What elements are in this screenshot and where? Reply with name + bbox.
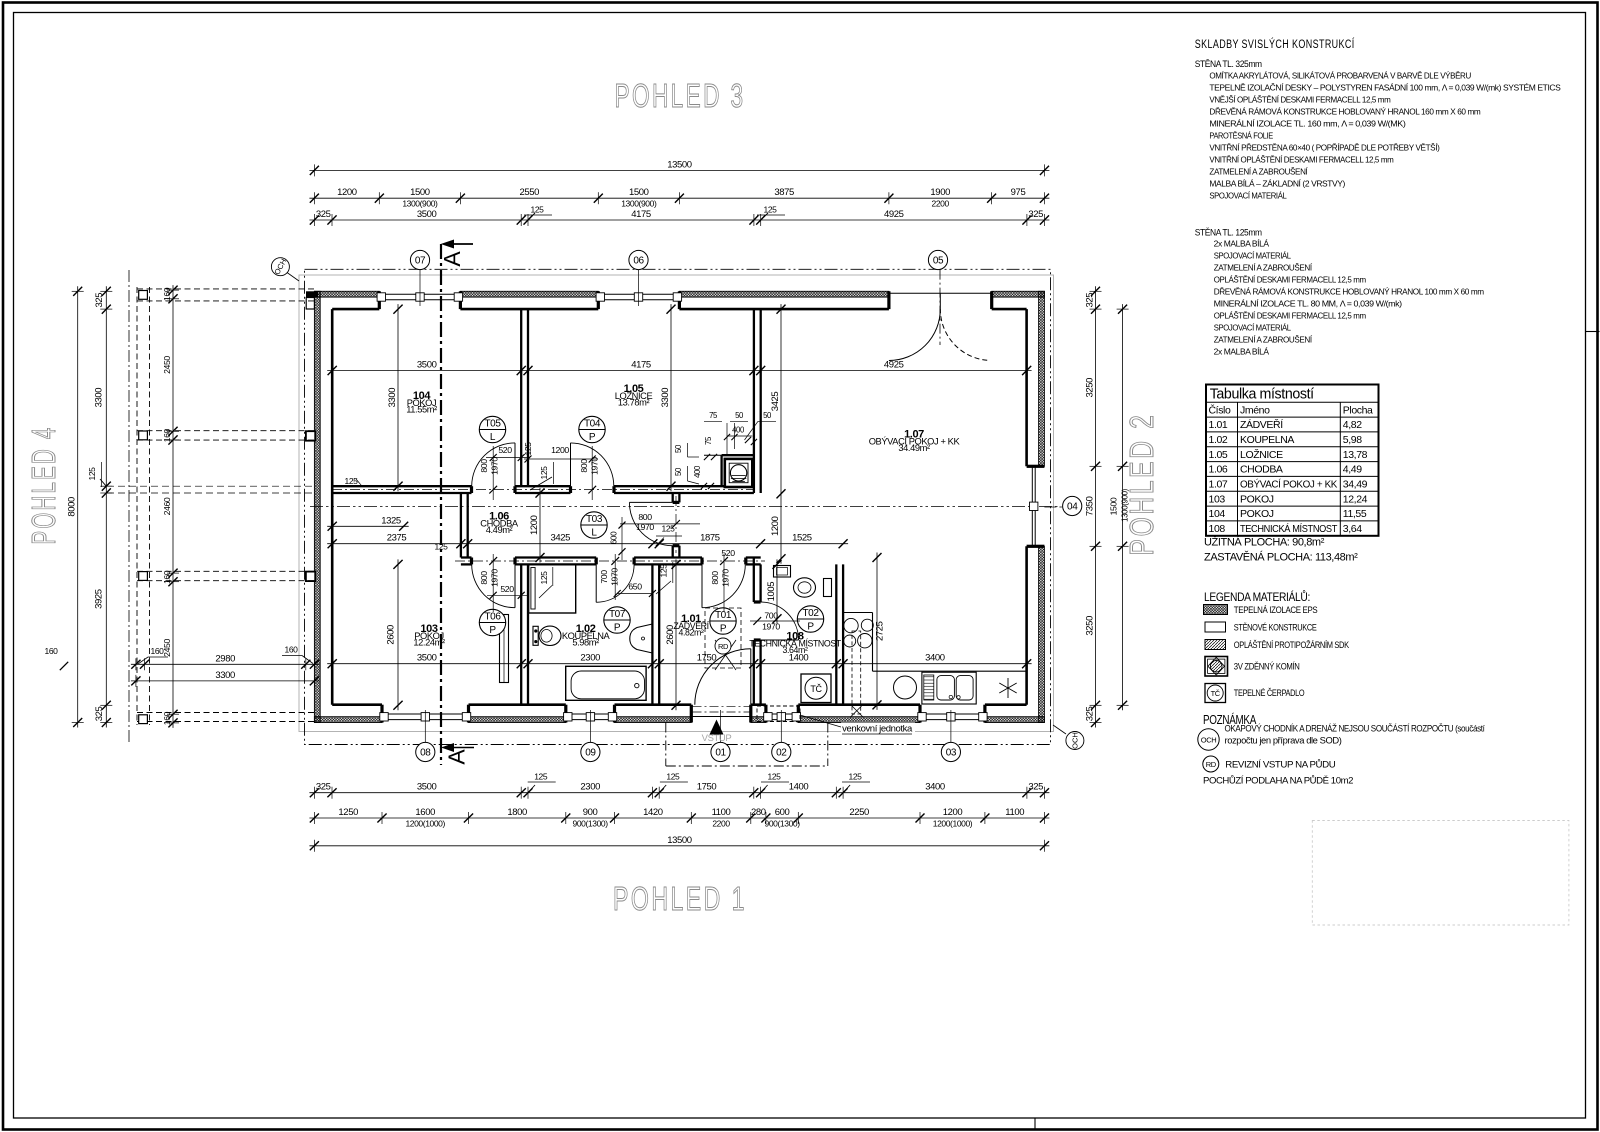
svg-text:3300: 3300 [94, 388, 105, 408]
svg-text:800: 800 [638, 512, 652, 522]
svg-text:50: 50 [735, 411, 744, 420]
svg-text:POHLED 3: POHLED 3 [615, 77, 746, 114]
svg-text:VNITŘNÍ PŘEDSTĚNA 60×40 ( POPŘ: VNITŘNÍ PŘEDSTĚNA 60×40 ( POPŘÍPADĚ DLE … [1209, 143, 1440, 153]
svg-text:1.02: 1.02 [1209, 434, 1228, 446]
svg-text:2x MALBA BÍLÁ: 2x MALBA BÍLÁ [1214, 347, 1270, 357]
svg-text:125: 125 [662, 524, 676, 534]
svg-text:02: 02 [776, 747, 787, 758]
svg-text:T06: T06 [484, 612, 501, 623]
svg-text:325: 325 [316, 782, 331, 793]
svg-text:2460: 2460 [162, 497, 172, 515]
svg-text:160: 160 [162, 428, 172, 442]
svg-text:160: 160 [162, 287, 172, 301]
svg-text:STĚNA TL. 125mm: STĚNA TL. 125mm [1195, 228, 1262, 238]
svg-text:3250: 3250 [1085, 616, 1096, 636]
svg-text:108: 108 [1209, 523, 1226, 535]
svg-text:ZATMELENÍ A ZABROUŠENÍ: ZATMELENÍ A ZABROUŠENÍ [1214, 335, 1313, 345]
svg-text:280: 280 [751, 807, 766, 818]
svg-text:OMÍTKA AKRYLÁTOVÁ, SILIKÁTOVÁ: OMÍTKA AKRYLÁTOVÁ, SILIKÁTOVÁ PROBARVENÁ… [1209, 71, 1471, 81]
svg-text:103: 103 [1209, 493, 1226, 505]
svg-text:125: 125 [849, 772, 863, 782]
svg-text:Plocha: Plocha [1343, 405, 1373, 417]
svg-text:1900: 1900 [930, 187, 950, 198]
svg-text:1250: 1250 [338, 807, 358, 818]
svg-text:LOŽNICE: LOŽNICE [1240, 448, 1283, 461]
svg-text:REVIZNÍ VSTUP NA PŮDU: REVIZNÍ VSTUP NA PŮDU [1225, 759, 1335, 770]
svg-text:13,78: 13,78 [1343, 449, 1368, 461]
svg-text:A: A [439, 251, 465, 267]
svg-text:2375: 2375 [387, 533, 407, 544]
svg-text:900(1300): 900(1300) [765, 819, 801, 829]
svg-text:04: 04 [1067, 501, 1078, 512]
svg-text:3.64m²: 3.64m² [783, 645, 808, 655]
svg-text:1200(1000): 1200(1000) [933, 819, 973, 829]
svg-text:PAROTĚSNÁ FOLIE: PAROTĚSNÁ FOLIE [1209, 131, 1273, 141]
svg-text:RD: RD [1206, 760, 1217, 769]
svg-text:2300: 2300 [580, 653, 600, 664]
svg-text:08: 08 [420, 747, 431, 758]
svg-text:OPLÁŠTĚNÍ DESKAMI FERMACELL 12: OPLÁŠTĚNÍ DESKAMI FERMACELL 12,5 mm [1214, 275, 1366, 285]
svg-text:1970: 1970 [490, 457, 500, 475]
svg-text:125: 125 [539, 571, 549, 585]
svg-text:5,98: 5,98 [1343, 434, 1362, 446]
svg-text:900(1300): 900(1300) [573, 819, 609, 829]
svg-text:7350: 7350 [1085, 496, 1096, 516]
svg-text:1005: 1005 [766, 582, 777, 602]
svg-text:T05: T05 [484, 419, 501, 430]
svg-text:OCH: OCH [1201, 736, 1216, 745]
svg-text:05: 05 [933, 255, 944, 266]
svg-text:P: P [589, 432, 596, 443]
svg-text:1970: 1970 [636, 522, 654, 532]
svg-text:2725: 2725 [875, 621, 886, 641]
svg-text:1500: 1500 [410, 187, 430, 198]
svg-text:09: 09 [585, 747, 596, 758]
svg-text:160: 160 [45, 646, 59, 656]
svg-text:125: 125 [523, 442, 533, 456]
svg-text:3500: 3500 [417, 209, 437, 220]
svg-text:POHLED 2: POHLED 2 [1123, 413, 1160, 556]
svg-text:POCHŮZÍ PODLAHA NA PŮDĚ 10m2: POCHŮZÍ PODLAHA NA PŮDĚ 10m2 [1203, 775, 1353, 786]
svg-text:2200: 2200 [932, 199, 950, 209]
svg-text:RD: RD [718, 642, 729, 651]
svg-text:125: 125 [435, 542, 449, 552]
svg-text:1100: 1100 [712, 807, 731, 818]
svg-text:160: 160 [162, 711, 172, 725]
svg-text:1970: 1970 [490, 569, 500, 587]
svg-text:104: 104 [1209, 508, 1226, 520]
svg-text:SPOJOVACÍ MATERIÁL: SPOJOVACÍ MATERIÁL [1214, 251, 1292, 261]
svg-text:1750: 1750 [697, 653, 717, 664]
svg-text:1.06: 1.06 [1209, 464, 1228, 476]
svg-text:1600: 1600 [415, 807, 435, 818]
svg-text:2300: 2300 [580, 782, 600, 793]
svg-text:UŽITNÁ PLOCHA: 90,8m²: UŽITNÁ PLOCHA: 90,8m² [1204, 536, 1325, 549]
svg-text:KOUPELNA: KOUPELNA [1240, 434, 1294, 446]
svg-text:1.07: 1.07 [1209, 479, 1228, 491]
svg-text:ZASTAVĚNÁ PLOCHA: 113,48m²: ZASTAVĚNÁ PLOCHA: 113,48m² [1204, 551, 1358, 564]
svg-text:1970: 1970 [590, 457, 600, 475]
svg-text:325: 325 [1085, 706, 1096, 721]
svg-text:T03: T03 [586, 514, 603, 525]
svg-text:13500: 13500 [667, 159, 692, 170]
svg-text:STĚNA TL. 325mm: STĚNA TL. 325mm [1195, 59, 1262, 69]
svg-text:325: 325 [94, 293, 105, 308]
svg-text:3V ZDĚNNÝ KOMÍN: 3V ZDĚNNÝ KOMÍN [1234, 662, 1300, 672]
svg-text:06: 06 [633, 255, 644, 266]
svg-text:MINERÁLNÍ IZOLACE TL. 80 MM, Λ: MINERÁLNÍ IZOLACE TL. 80 MM, Λ = 0,039 W… [1214, 299, 1403, 309]
svg-text:POHLED 1: POHLED 1 [613, 880, 747, 917]
svg-text:125: 125 [345, 476, 359, 486]
svg-text:POHLED 4: POHLED 4 [25, 426, 62, 545]
svg-text:50: 50 [763, 411, 772, 420]
svg-text:DŘEVĚNÁ RÁMOVÁ KONSTRUKCE HOBL: DŘEVĚNÁ RÁMOVÁ KONSTRUKCE HOBLOVANÝ HRAN… [1209, 107, 1480, 117]
svg-text:125: 125 [87, 467, 97, 481]
svg-text:160: 160 [151, 646, 165, 656]
svg-text:OPLÁŠTĚNÍ DESKAMI FERMACELL 12: OPLÁŠTĚNÍ DESKAMI FERMACELL 12,5 mm [1214, 311, 1366, 321]
svg-text:650: 650 [628, 582, 642, 592]
svg-text:4175: 4175 [631, 360, 651, 371]
svg-text:800: 800 [579, 459, 589, 473]
svg-text:400: 400 [693, 465, 702, 478]
svg-text:75: 75 [709, 411, 718, 420]
svg-text:1400: 1400 [789, 782, 809, 793]
svg-text:900: 900 [583, 807, 598, 818]
svg-text:3500: 3500 [417, 782, 437, 793]
svg-text:520: 520 [721, 548, 735, 558]
svg-text:P: P [489, 625, 496, 636]
svg-text:125: 125 [764, 205, 778, 215]
svg-text:13.78m²: 13.78m² [618, 398, 650, 408]
svg-text:11.55m²: 11.55m² [406, 405, 437, 415]
svg-text:OBÝVACÍ POKOJ + KK: OBÝVACÍ POKOJ + KK [1240, 478, 1337, 491]
svg-text:1500: 1500 [629, 187, 649, 198]
svg-text:125: 125 [534, 772, 548, 782]
svg-text:3300: 3300 [387, 388, 398, 408]
svg-text:LEGENDA MATERIÁLŮ:: LEGENDA MATERIÁLŮ: [1204, 589, 1310, 604]
svg-text:2550: 2550 [520, 187, 540, 198]
svg-text:700: 700 [764, 611, 778, 621]
svg-text:1525: 1525 [792, 533, 812, 544]
svg-text:1300(900): 1300(900) [1121, 488, 1130, 522]
svg-text:TČ: TČ [810, 684, 822, 694]
svg-text:CHODBA: CHODBA [1240, 464, 1283, 476]
svg-text:L: L [591, 528, 597, 539]
svg-text:4.49m²: 4.49m² [486, 525, 513, 535]
svg-text:MINERÁLNÍ IZOLACE TL. 160 mm,: MINERÁLNÍ IZOLACE TL. 160 mm, Λ = 0,039 … [1209, 119, 1406, 129]
svg-text:520: 520 [498, 445, 512, 455]
svg-text:T04: T04 [584, 419, 601, 430]
svg-text:325: 325 [1028, 209, 1043, 220]
svg-text:2200: 2200 [712, 819, 730, 829]
svg-text:2450: 2450 [162, 639, 172, 657]
svg-text:3925: 3925 [94, 589, 105, 609]
svg-text:OKAPOVÝ CHODNÍK A DRENÁŽ NEJSO: OKAPOVÝ CHODNÍK A DRENÁŽ NEJSOU SOUČÁSTÍ… [1225, 724, 1486, 734]
svg-text:1500: 1500 [1109, 497, 1119, 515]
svg-text:5.98m²: 5.98m² [572, 638, 599, 648]
svg-text:rozpočtu jen příprava dle SOD): rozpočtu jen příprava dle SOD) [1225, 736, 1342, 746]
svg-text:2x MALBA BÍLÁ: 2x MALBA BÍLÁ [1214, 239, 1270, 249]
svg-text:TECHNICKÁ MÍSTNOST: TECHNICKÁ MÍSTNOST [1240, 522, 1338, 535]
svg-text:1200: 1200 [943, 807, 963, 818]
svg-text:4,82: 4,82 [1343, 419, 1362, 431]
svg-text:2980: 2980 [215, 653, 235, 664]
svg-text:1200: 1200 [551, 445, 569, 455]
svg-text:T07: T07 [609, 609, 626, 620]
svg-text:TEPELNÁ IZOLACE EPS: TEPELNÁ IZOLACE EPS [1234, 605, 1318, 615]
svg-text:600: 600 [775, 807, 790, 818]
svg-text:1.05: 1.05 [1209, 449, 1228, 461]
svg-text:1420: 1420 [643, 807, 663, 818]
svg-text:OCH: OCH [1070, 732, 1079, 749]
svg-text:325: 325 [94, 706, 105, 721]
svg-text:34.49m²: 34.49m² [898, 443, 930, 453]
svg-text:03: 03 [946, 747, 957, 758]
svg-text:1750: 1750 [697, 782, 717, 793]
svg-text:700: 700 [599, 570, 609, 584]
svg-text:3,64: 3,64 [1343, 523, 1362, 535]
svg-text:1800: 1800 [507, 807, 527, 818]
svg-text:125: 125 [768, 772, 782, 782]
svg-text:3500: 3500 [417, 653, 437, 664]
svg-text:1300(900): 1300(900) [621, 199, 657, 209]
svg-text:MALBA BÍLÁ – ZÁKLADNÍ (2 VRSTV: MALBA BÍLÁ – ZÁKLADNÍ (2 VRSTVY) [1209, 179, 1345, 189]
svg-text:12.24m²: 12.24m² [413, 638, 445, 648]
svg-text:L: L [490, 432, 496, 443]
svg-text:8000: 8000 [67, 497, 78, 517]
svg-text:400: 400 [732, 426, 745, 435]
svg-text:1325: 1325 [381, 515, 401, 526]
svg-text:1970: 1970 [721, 569, 731, 587]
svg-text:01: 01 [715, 747, 726, 758]
svg-text:3250: 3250 [1085, 378, 1096, 398]
svg-text:STĚNOVÉ KONSTRUKCE: STĚNOVÉ KONSTRUKCE [1234, 623, 1317, 633]
svg-text:325: 325 [1085, 293, 1096, 308]
svg-text:venkovní jednotka: venkovní jednotka [842, 724, 913, 735]
svg-text:VSTUP: VSTUP [702, 733, 732, 744]
svg-text:T01: T01 [715, 610, 732, 621]
svg-text:800: 800 [479, 459, 489, 473]
svg-text:ZATMELENÍ A ZABROUŠENÍ: ZATMELENÍ A ZABROUŠENÍ [1209, 167, 1308, 177]
svg-text:160: 160 [285, 645, 299, 655]
svg-text:SPOJOVACÍ MATERIÁL: SPOJOVACÍ MATERIÁL [1209, 191, 1287, 201]
svg-text:325: 325 [316, 209, 331, 220]
svg-text:11,55: 11,55 [1343, 508, 1367, 520]
svg-text:1200: 1200 [337, 187, 357, 198]
svg-text:1875: 1875 [700, 533, 720, 544]
svg-text:12,24: 12,24 [1343, 493, 1368, 505]
svg-text:2600: 2600 [385, 625, 396, 645]
svg-text:1300(900): 1300(900) [402, 199, 438, 209]
svg-text:1200: 1200 [770, 516, 781, 536]
svg-text:1970: 1970 [762, 622, 780, 632]
svg-text:3500: 3500 [417, 360, 437, 371]
svg-text:1200: 1200 [529, 515, 540, 535]
svg-text:TČ: TČ [1211, 689, 1221, 698]
svg-text:13500: 13500 [667, 835, 692, 846]
svg-text:3425: 3425 [551, 533, 571, 544]
svg-text:SKLADBY SVISLÝCH KONSTRUKCÍ: SKLADBY SVISLÝCH KONSTRUKCÍ [1195, 38, 1355, 51]
svg-text:3300: 3300 [215, 670, 235, 681]
svg-text:T02: T02 [802, 608, 819, 619]
svg-text:3875: 3875 [774, 187, 794, 198]
svg-text:125: 125 [539, 466, 549, 480]
svg-text:325: 325 [1028, 782, 1043, 793]
svg-text:2450: 2450 [162, 356, 172, 374]
svg-text:07: 07 [415, 255, 426, 266]
svg-text:P: P [614, 623, 621, 634]
svg-text:VNĚJŠÍ OPLÁŠTĚNÍ DESKAMI FERMA: VNĚJŠÍ OPLÁŠTĚNÍ DESKAMI FERMACELL 12,5 … [1209, 95, 1390, 105]
svg-text:4,49: 4,49 [1343, 464, 1362, 476]
svg-text:A: A [444, 749, 470, 765]
svg-text:POKOJ: POKOJ [1240, 508, 1274, 520]
svg-text:3400: 3400 [925, 653, 945, 664]
svg-text:3300: 3300 [660, 388, 671, 408]
svg-text:4925: 4925 [884, 209, 904, 220]
svg-text:75: 75 [704, 436, 713, 445]
svg-text:OPLÁŠTĚNÍ PROTIPOŽÁRNÍM SDK: OPLÁŠTĚNÍ PROTIPOŽÁRNÍM SDK [1234, 640, 1349, 650]
svg-text:50: 50 [674, 444, 683, 453]
svg-text:DŘEVĚNÁ RÁMOVÁ KONSTRUKCE HOBL: DŘEVĚNÁ RÁMOVÁ KONSTRUKCE HOBLOVANÝ HRAN… [1214, 287, 1484, 297]
svg-text:P: P [807, 622, 814, 633]
svg-text:125: 125 [666, 772, 680, 782]
svg-text:34,49: 34,49 [1343, 479, 1368, 491]
svg-text:800: 800 [479, 571, 489, 585]
svg-text:125: 125 [531, 205, 545, 215]
svg-text:2250: 2250 [849, 807, 869, 818]
svg-text:VNITŘNÍ OPLÁŠTĚNÍ DESKAMI FERM: VNITŘNÍ OPLÁŠTĚNÍ DESKAMI FERMACELL 12,5… [1209, 155, 1393, 165]
svg-text:975: 975 [1011, 187, 1026, 198]
svg-text:125: 125 [659, 564, 669, 578]
svg-text:Číslo: Číslo [1209, 404, 1231, 417]
svg-text:ZATMELENÍ A ZABROUŠENÍ: ZATMELENÍ A ZABROUŠENÍ [1214, 263, 1313, 273]
svg-text:TEPELNÉ ČERPADLO: TEPELNÉ ČERPADLO [1234, 688, 1305, 698]
svg-text:4175: 4175 [631, 209, 651, 220]
svg-text:3400: 3400 [925, 782, 945, 793]
svg-text:POKOJ: POKOJ [1240, 493, 1274, 505]
svg-text:P: P [720, 624, 727, 635]
svg-text:800: 800 [710, 571, 720, 585]
svg-text:Tabulka místností: Tabulka místností [1210, 386, 1314, 402]
svg-text:3425: 3425 [770, 392, 781, 412]
svg-text:520: 520 [500, 584, 514, 594]
svg-text:160: 160 [162, 570, 172, 584]
svg-text:Jméno: Jméno [1240, 405, 1270, 417]
svg-text:1.01: 1.01 [1209, 419, 1228, 431]
svg-text:1200(1000): 1200(1000) [405, 819, 445, 829]
svg-text:4.82m²: 4.82m² [679, 628, 704, 638]
svg-text:50: 50 [674, 467, 683, 476]
svg-text:1100: 1100 [1005, 807, 1024, 818]
svg-text:4925: 4925 [884, 360, 904, 371]
svg-text:SPOJOVACÍ MATERIÁL: SPOJOVACÍ MATERIÁL [1214, 323, 1292, 333]
svg-text:ZÁDVEŘÍ: ZÁDVEŘÍ [1240, 418, 1283, 431]
svg-text:1970: 1970 [610, 568, 620, 586]
svg-text:TEPELNĚ IZOLAČNÍ DESKY – POLYS: TEPELNĚ IZOLAČNÍ DESKY – POLYSTYREN FASÁ… [1209, 83, 1561, 93]
svg-text:600: 600 [610, 531, 619, 544]
